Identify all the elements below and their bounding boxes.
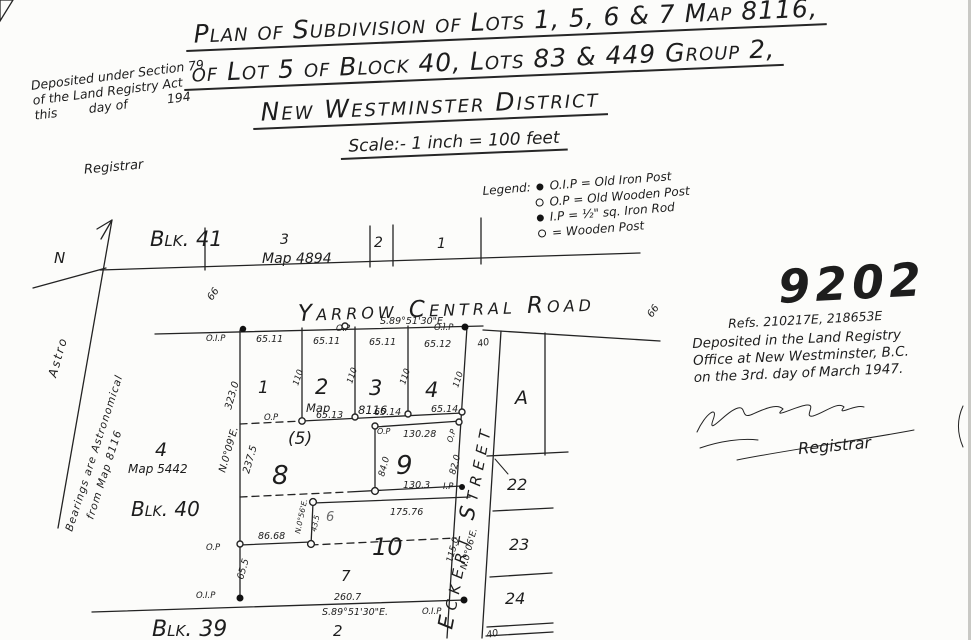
lot24-bottom-line [487, 623, 553, 627]
north-arrow: N Astro Bearings are Astronomical from M… [33, 220, 125, 533]
wood-post-marker [342, 323, 348, 329]
iron-post-marker [462, 324, 469, 331]
post-label: O.I.P [206, 334, 226, 344]
lot8-label: 8 [272, 461, 289, 491]
bearing-label: N.0°56'E. [293, 498, 309, 534]
street-width-bottom: 40 [485, 628, 499, 640]
post-label: O.I.P [196, 591, 216, 601]
lot24-label: 24 [505, 589, 525, 608]
open-dot-icon [538, 229, 547, 238]
lot4-label: 4 [425, 378, 438, 402]
measure-label: 65.14 [431, 404, 458, 415]
filled-dot-icon [537, 183, 545, 191]
signature-stroke [697, 405, 864, 432]
lot10-label: 10 [372, 533, 403, 561]
measure-label: 86.68 [258, 531, 285, 542]
road-width-right: 66 [645, 303, 661, 320]
iron-post-marker [459, 484, 465, 490]
road-width-left: 66 [205, 286, 221, 303]
measure-label: 43.5 [309, 514, 321, 532]
lot5-label: (5) [288, 429, 312, 449]
lot23-bottom-line [490, 573, 552, 577]
road-south-line-east [483, 330, 660, 341]
south-boundary [92, 600, 465, 612]
wood-post-marker [405, 411, 411, 417]
map4894-label: Map 4894 [262, 251, 332, 267]
blk40-label: Blk. 40 [131, 497, 200, 521]
bearing-bottom-label: S.89°51'30"E. [322, 607, 388, 618]
wood-post-marker [372, 488, 379, 495]
post-label: O.P [377, 427, 391, 436]
lot7-label: 7 [341, 567, 351, 585]
astro-label: Astro [45, 335, 70, 380]
lot4-outer-label: 4 [155, 439, 167, 461]
blk41-label: Blk. 41 [150, 227, 223, 251]
wood-post-marker [352, 414, 358, 420]
measure-label: 175.76 [390, 507, 423, 518]
post-label: O.P [445, 428, 458, 444]
lot2-bottom-label: 2 [333, 622, 343, 640]
lots-5-8-9: (5) 8 O.P 130.28 O.P 9 84.0 82.0 130.3 I… [240, 421, 463, 497]
measure-label: 237.5 [241, 444, 259, 475]
north-label: N [54, 249, 65, 267]
filled-dot-icon [537, 215, 545, 223]
lot22-label: 22 [507, 475, 527, 494]
lot2-label: 2 [315, 375, 328, 399]
yarrow-road-label: Yarrow Central Road [298, 291, 596, 327]
depth-label: 110 [398, 367, 413, 386]
wood-post-marker [299, 418, 305, 424]
depth-label: 110 [291, 368, 306, 387]
wood-post-marker [372, 423, 378, 429]
measure-label: 65.12 [424, 339, 451, 350]
iron-post-marker [237, 595, 244, 602]
measure-label: 84.0 [377, 456, 392, 478]
scan-corner-artifact [0, 0, 13, 21]
measure-label: 260.7 [334, 592, 361, 603]
wood-post-marker [459, 409, 465, 415]
bearing-label: N.0°09'E. [217, 426, 241, 474]
legend-title: Legend: [482, 180, 531, 199]
lot8-bottom-dashed [240, 492, 348, 497]
depth-label: 110 [345, 366, 360, 385]
measure-label: 65.5 [235, 557, 251, 580]
lotA-label: A [513, 387, 528, 409]
measure-label: 65.13 [316, 410, 343, 421]
lot22-bottom-line [493, 508, 553, 511]
wood-post-marker [310, 499, 317, 506]
lot23-label: 23 [509, 535, 529, 554]
measure-label: 65.11 [313, 336, 340, 347]
lot9-label: 9 [396, 451, 413, 481]
post-label: O.I.P [434, 323, 454, 333]
plan-number: 9202 [777, 252, 928, 314]
lot1-label: 1 [258, 378, 269, 398]
lot3-label: 3 [369, 376, 382, 400]
lot6-bottom-line [313, 497, 470, 503]
lot6-label: 6 [326, 510, 334, 525]
lot2-top-label: 2 [374, 235, 383, 251]
registry-stamp: Deposited in the Land Registry Office at… [692, 327, 910, 387]
measure-label: 323.0 [223, 380, 241, 411]
measure-label: 65.11 [256, 334, 283, 345]
post-label: O.P [206, 543, 221, 553]
m8668-line [240, 542, 311, 545]
measure-label: 130.3 [403, 480, 430, 491]
signature-stroke [700, 439, 758, 448]
scan-edge-artifact [959, 406, 964, 447]
post-label: O.P [264, 413, 279, 423]
measure-label: 82.0 [448, 454, 463, 476]
lot1-top-label: 1 [437, 236, 446, 252]
survey-plan-document: N Astro Bearings are Astronomical from M… [0, 0, 971, 640]
wood-post-marker [308, 541, 315, 548]
open-dot-icon [535, 198, 544, 207]
wood-post-marker [237, 541, 243, 547]
blk39-label: Blk. 39 [152, 617, 227, 640]
north-arrow-crossbar [33, 268, 106, 288]
measure-label: 65.14 [374, 407, 401, 418]
iron-post-marker [240, 326, 246, 332]
measure-label: 65.11 [369, 337, 396, 348]
map5442-label: Map 5442 [128, 462, 188, 476]
measure-label: 130.28 [403, 429, 436, 440]
tick-mark [495, 459, 508, 474]
iron-post-marker [461, 597, 468, 604]
wood-post-marker [456, 419, 462, 425]
street-width-top: 40 [476, 337, 490, 350]
lotA-bottom-line [487, 452, 568, 456]
lot3-top-label: 3 [280, 232, 289, 248]
post-label: I.P [443, 482, 454, 492]
